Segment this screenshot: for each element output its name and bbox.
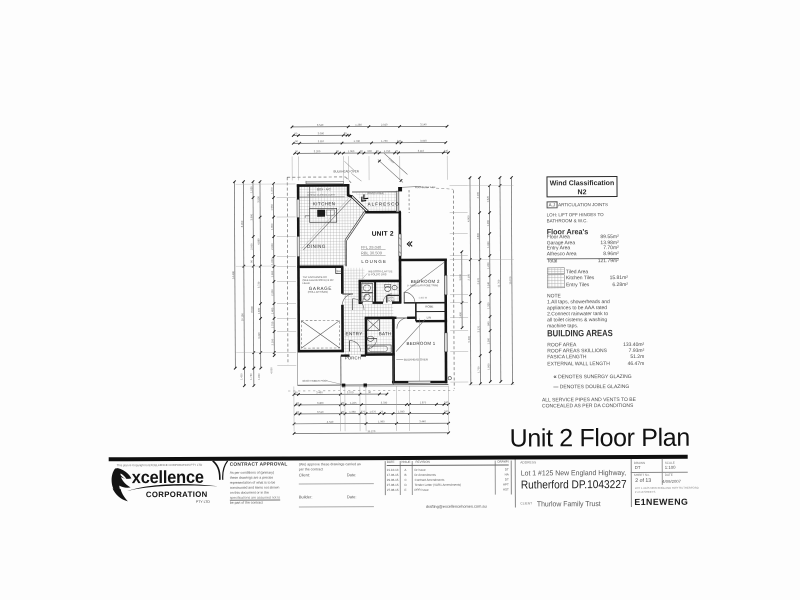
svg-text:2.000: 2.000 <box>250 243 253 250</box>
svg-text:4.050: 4.050 <box>270 367 273 374</box>
svg-text:1.750: 1.750 <box>384 150 391 153</box>
svg-text:SH4: SH4 <box>336 270 342 273</box>
svg-text:(PAVED AREA): (PAVED AREA) <box>367 192 384 195</box>
svg-text:1.620: 1.620 <box>487 195 490 202</box>
svg-text:1.500: 1.500 <box>271 270 274 277</box>
svg-text:90: 90 <box>368 391 371 394</box>
svg-text:(+ MODULAR ROBE TRIM): (+ MODULAR ROBE TRIM) <box>407 284 438 287</box>
svg-text:1.260: 1.260 <box>487 337 490 344</box>
svg-text:2.100: 2.100 <box>271 338 274 345</box>
svg-text:1.480: 1.480 <box>271 307 274 314</box>
svg-text:ENTRY: ENTRY <box>346 331 363 336</box>
svg-text:90: 90 <box>360 150 363 153</box>
svg-text:3.140: 3.140 <box>420 123 427 126</box>
svg-text:1.462 W: 1.462 W <box>418 296 427 299</box>
svg-text:BULKHEAD OVER: BULKHEAD OVER <box>404 357 428 361</box>
svg-text:1.950: 1.950 <box>271 223 274 230</box>
svg-text:1.310: 1.310 <box>271 321 274 328</box>
svg-text:8.450: 8.450 <box>241 220 244 227</box>
svg-text:240: 240 <box>444 401 449 404</box>
svg-text:3.460: 3.460 <box>317 402 324 405</box>
svg-text:B-FOLD'G DRS: B-FOLD'G DRS <box>368 273 387 276</box>
svg-text:4.880: 4.880 <box>257 238 260 245</box>
svg-text:1.530: 1.530 <box>250 186 253 193</box>
svg-text:1.140: 1.140 <box>487 281 490 288</box>
svg-text:1.830: 1.830 <box>258 373 261 380</box>
svg-text:2.100: 2.100 <box>477 191 480 198</box>
svg-text:3.110: 3.110 <box>418 150 425 153</box>
svg-text:1.200: 1.200 <box>487 262 490 269</box>
svg-text:1.875: 1.875 <box>420 401 427 404</box>
svg-text:1.800: 1.800 <box>487 363 490 370</box>
svg-text:DINING: DINING <box>307 244 326 249</box>
svg-text:(ROLL ARTISAN): (ROLL ARTISAN) <box>308 291 328 294</box>
svg-text:BEDROOM 2: BEDROOM 2 <box>411 279 440 284</box>
svg-text:3.080: 3.080 <box>318 132 325 135</box>
svg-text:3.170: 3.170 <box>477 325 480 332</box>
svg-text:ROBE: ROBE <box>425 304 433 308</box>
svg-text:840: 840 <box>487 321 490 326</box>
svg-text:3.070: 3.070 <box>347 391 354 394</box>
svg-text:2.899: 2.899 <box>388 158 395 165</box>
svg-text:1.730: 1.730 <box>381 140 388 143</box>
svg-text:90x90 TIMBER POST: 90x90 TIMBER POST <box>302 380 328 383</box>
svg-text:LOUNGE: LOUNGE <box>361 259 387 264</box>
svg-text:LIN: LIN <box>427 315 431 319</box>
svg-text:1.430: 1.430 <box>240 373 243 380</box>
svg-text:1.990: 1.990 <box>378 420 385 423</box>
svg-text:90: 90 <box>296 411 299 414</box>
svg-text:90: 90 <box>344 132 347 135</box>
svg-text:2.110: 2.110 <box>318 140 325 143</box>
svg-text:90: 90 <box>341 411 344 414</box>
svg-text:90: 90 <box>341 402 344 405</box>
svg-text:5.300: 5.300 <box>468 335 471 342</box>
svg-text:3.440: 3.440 <box>419 420 426 423</box>
svg-text:3.900: 3.900 <box>250 213 253 220</box>
svg-text:90: 90 <box>376 150 379 153</box>
svg-text:90: 90 <box>336 150 339 153</box>
svg-text:10.190: 10.190 <box>241 313 244 322</box>
svg-text:870: 870 <box>361 411 366 414</box>
svg-text:90: 90 <box>296 402 299 405</box>
svg-text:1.950: 1.950 <box>271 204 274 211</box>
svg-text:RBL 30.509: RBL 30.509 <box>361 250 383 255</box>
svg-text:3.000: 3.000 <box>459 273 462 280</box>
svg-text:BOX - A/C: BOX - A/C <box>317 187 332 191</box>
svg-text:3.540: 3.540 <box>317 124 324 127</box>
svg-text:15.270: 15.270 <box>367 430 376 433</box>
svg-text:KITCHEN: KITCHEN <box>313 201 336 206</box>
svg-text:4.540: 4.540 <box>327 421 334 424</box>
svg-text:BEDROOM 1: BEDROOM 1 <box>406 341 435 346</box>
svg-text:2.800: 2.800 <box>477 232 480 239</box>
svg-text:240: 240 <box>444 150 449 153</box>
svg-text:Roof Gutter Line: Roof Gutter Line <box>415 185 436 189</box>
svg-text:1.280: 1.280 <box>355 124 362 127</box>
svg-text:4.900: 4.900 <box>467 215 470 222</box>
svg-text:1.060: 1.060 <box>348 150 355 153</box>
svg-text:1.780: 1.780 <box>250 373 253 380</box>
svg-text:2.200: 2.200 <box>271 289 274 296</box>
svg-text:1.000: 1.000 <box>271 258 274 265</box>
svg-text:2.000: 2.000 <box>271 243 274 250</box>
svg-text:3.510: 3.510 <box>317 411 324 414</box>
svg-text:3.550: 3.550 <box>257 196 260 203</box>
svg-text:HEAD: HEAD <box>303 282 310 285</box>
svg-text:1.225: 1.225 <box>350 402 357 405</box>
svg-text:1.260: 1.260 <box>487 219 490 226</box>
svg-text:15.070: 15.070 <box>509 276 512 285</box>
svg-text:1.320: 1.320 <box>487 241 490 248</box>
svg-text:3.200: 3.200 <box>314 150 321 153</box>
svg-text:8.640: 8.640 <box>251 306 254 313</box>
svg-text:3.000: 3.000 <box>420 140 427 143</box>
svg-text:BATH: BATH <box>379 331 391 336</box>
svg-text:1.360: 1.360 <box>349 411 356 414</box>
svg-text:14.480: 14.480 <box>232 270 235 279</box>
svg-text:900: 900 <box>367 150 372 153</box>
svg-text:90: 90 <box>294 132 297 135</box>
svg-text:1.700: 1.700 <box>477 366 480 373</box>
svg-text:1.670: 1.670 <box>369 411 376 414</box>
svg-text:UNIT 2: UNIT 2 <box>372 231 394 238</box>
svg-text:O/HEAD CUPB'DS OVER: O/HEAD CUPB'DS OVER <box>307 194 335 197</box>
svg-text:3.420: 3.420 <box>258 332 261 339</box>
svg-text:ROBE: ROBE <box>388 299 395 302</box>
svg-text:2.020: 2.020 <box>381 124 388 127</box>
svg-text:3.460: 3.460 <box>316 391 323 394</box>
svg-text:1.790: 1.790 <box>354 140 361 143</box>
svg-text:3.780: 3.780 <box>381 402 388 405</box>
svg-text:70: 70 <box>395 150 398 153</box>
svg-text:1.840: 1.840 <box>398 410 405 413</box>
svg-text:11.760: 11.760 <box>498 279 501 287</box>
svg-text:PORCH: PORCH <box>345 355 361 360</box>
svg-text:240: 240 <box>397 140 402 143</box>
svg-text:1.370: 1.370 <box>271 187 274 194</box>
svg-text:BULKHEAD OVER: BULKHEAD OVER <box>333 169 359 173</box>
svg-text:3.730: 3.730 <box>258 281 261 288</box>
svg-text:2.100: 2.100 <box>468 273 471 280</box>
svg-text:1.480: 1.480 <box>258 307 261 314</box>
svg-text:90: 90 <box>295 140 298 143</box>
svg-text:90: 90 <box>295 150 298 153</box>
svg-text:90: 90 <box>295 391 298 394</box>
svg-text:1.320: 1.320 <box>487 302 490 309</box>
svg-text:70: 70 <box>380 411 383 414</box>
svg-text:FFL 29.040: FFL 29.040 <box>361 245 382 250</box>
svg-text:ALFRESCO: ALFRESCO <box>368 201 400 206</box>
svg-text:2.570: 2.570 <box>477 277 480 284</box>
svg-text:240: 240 <box>444 410 449 413</box>
